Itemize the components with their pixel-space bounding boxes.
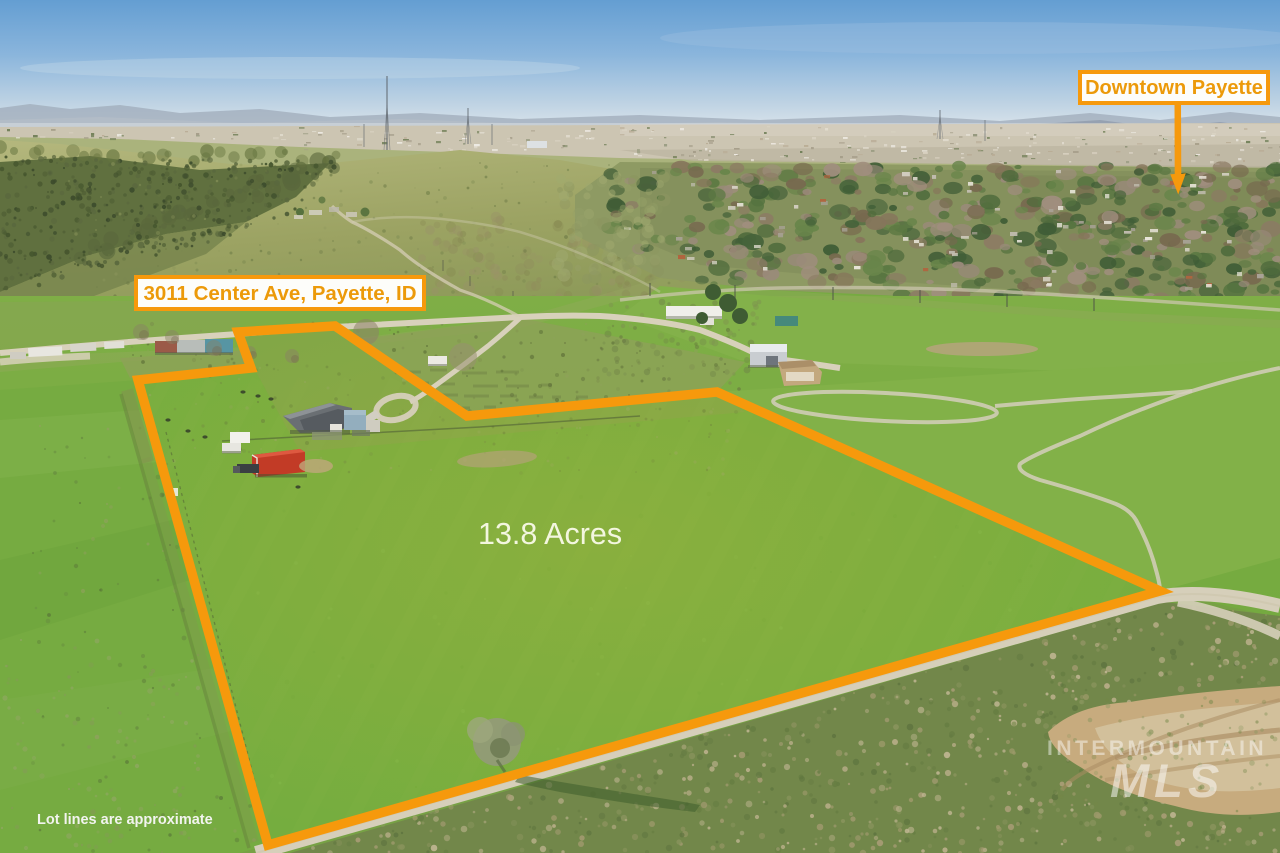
svg-text:3011 Center Ave, Payette, ID: 3011 Center Ave, Payette, ID — [143, 282, 416, 305]
svg-text:Lot lines are approximate: Lot lines are approximate — [37, 812, 213, 828]
svg-text:MLS: MLS — [1110, 754, 1224, 807]
svg-text:13.8 Acres: 13.8 Acres — [478, 517, 622, 551]
svg-text:Downtown Payette: Downtown Payette — [1085, 77, 1263, 99]
